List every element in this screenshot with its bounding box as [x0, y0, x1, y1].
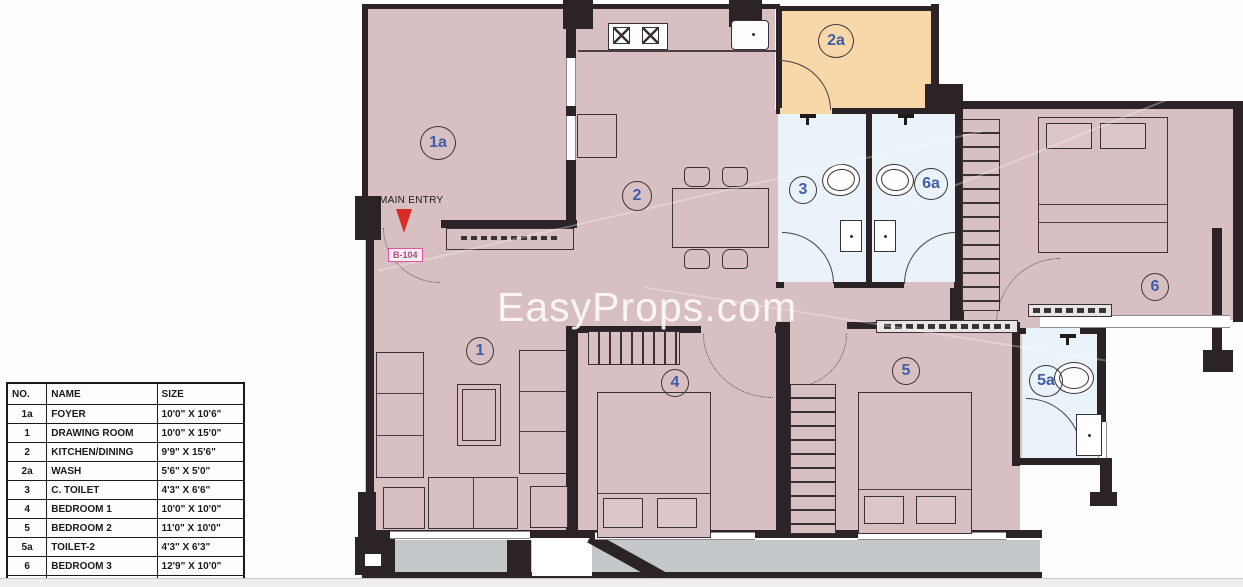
sofa-left [376, 352, 424, 478]
legend-cell-name: FOYER [47, 405, 157, 424]
room-label-5: 5 [892, 357, 920, 385]
stool [383, 487, 425, 529]
dining-chair [684, 167, 710, 187]
pillow [1100, 123, 1146, 149]
wall-pillar [1090, 492, 1117, 506]
door-gap-bedroom2 [791, 322, 847, 329]
page-bottom-strip [0, 578, 1243, 587]
wall [362, 4, 368, 198]
legend-table: NO. NAME SIZE 1a FOYER 10'0" X 10'6" 1 D… [6, 382, 245, 587]
pillow [603, 498, 643, 528]
legend-header-no: NO. [7, 383, 47, 405]
legend-header-name: NAME [47, 383, 157, 405]
sofa-bottom [428, 477, 518, 529]
legend-row: 6 BEDROOM 3 12'9" X 10'0" [7, 557, 244, 576]
sofa-right [519, 350, 567, 474]
shower-icon [1060, 334, 1076, 338]
wardrobe-bedroom3 [962, 119, 1000, 311]
legend-cell-size: 4'3" X 6'6" [157, 481, 244, 500]
legend-header-row: NO. NAME SIZE [7, 383, 244, 405]
legend-row: 4 BEDROOM 1 10'0" X 10'0" [7, 500, 244, 519]
balcony-gap [532, 540, 592, 576]
legend-row: 2 KITCHEN/DINING 9'9" X 15'6" [7, 443, 244, 462]
wall [866, 112, 872, 284]
wall [1212, 228, 1222, 354]
pillow [916, 496, 956, 524]
window [566, 58, 576, 106]
dining-chair [722, 249, 748, 269]
burner-icon [642, 27, 659, 44]
legend-row: 1a FOYER 10'0" X 10'6" [7, 405, 244, 424]
legend-cell-name: DRAWING ROOM [47, 424, 157, 443]
legend-cell-no: 1a [7, 405, 47, 424]
coffee-table [457, 384, 501, 446]
legend-cell-name: KITCHEN/DINING [47, 443, 157, 462]
room-label-6a: 6a [914, 168, 948, 200]
legend-cell-size: 12'9" X 10'0" [157, 557, 244, 576]
kitchen-counter-line [578, 50, 776, 52]
legend-row: 2a WASH 5'6" X 5'0" [7, 462, 244, 481]
legend-cell-size: 10'0" X 10'0" [157, 500, 244, 519]
wall [776, 322, 790, 538]
wall-pillar [563, 0, 593, 29]
legend-cell-size: 10'0" X 15'0" [157, 424, 244, 443]
legend-cell-no: 6 [7, 557, 47, 576]
room-label-5a: 5a [1029, 365, 1063, 397]
wardrobe-central [790, 384, 836, 534]
room-label-3: 3 [789, 176, 817, 204]
pillow [864, 496, 904, 524]
room-label-4: 4 [661, 369, 689, 397]
wardrobe-bedroom1 [588, 331, 680, 365]
room-label-6: 6 [1141, 273, 1169, 301]
ledge-bedroom3 [1028, 304, 1112, 317]
wash-basin [840, 220, 862, 252]
legend-row: 5a TOILET-2 4'3" X 6'3" [7, 538, 244, 557]
legend-cell-no: 1 [7, 424, 47, 443]
legend-cell-name: TOILET-2 [47, 538, 157, 557]
legend-row: 3 C. TOILET 4'3" X 6'6" [7, 481, 244, 500]
sink-drain-dot [752, 33, 755, 36]
stool [530, 486, 568, 528]
kitchen-sink [731, 20, 769, 50]
legend-row: 1 DRAWING ROOM 10'0" X 15'0" [7, 424, 244, 443]
wall [776, 6, 938, 11]
wall-pillar [507, 540, 531, 572]
window [390, 531, 530, 539]
legend-cell-no: 2a [7, 462, 47, 481]
legend-cell-name: BEDROOM 1 [47, 500, 157, 519]
legend-header-size: SIZE [157, 383, 244, 405]
legend-cell-no: 5 [7, 519, 47, 538]
legend-cell-size: 9'9" X 15'6" [157, 443, 244, 462]
wall [955, 101, 1242, 109]
room-label-2: 2 [622, 181, 652, 211]
floor-plan-page: EasyProps.com MAIN ENTRY B-104 1a 2 2a 3… [0, 0, 1243, 587]
legend-cell-size: 11'0" X 10'0" [157, 519, 244, 538]
wall-pillar-notch [365, 554, 381, 566]
wall [1097, 326, 1106, 422]
shower-icon [800, 114, 816, 118]
wall [441, 220, 577, 228]
unit-number-badge: B-104 [388, 248, 423, 262]
wash-basin [1076, 414, 1102, 456]
wall [1018, 458, 1106, 465]
legend-cell-name: BEDROOM 2 [47, 519, 157, 538]
main-entry-label: MAIN ENTRY [379, 195, 444, 206]
legend-cell-size: 5'6" X 5'0" [157, 462, 244, 481]
wall [358, 492, 376, 538]
burner-icon [613, 27, 630, 44]
dining-table [672, 188, 769, 248]
dining-chair [684, 249, 710, 269]
wall [1233, 101, 1243, 322]
stove [608, 23, 668, 50]
wash-basin [874, 220, 896, 252]
room-label-1: 1 [466, 337, 494, 365]
legend-cell-no: 2 [7, 443, 47, 462]
entry-arrow-icon [396, 209, 412, 233]
refrigerator [577, 114, 617, 158]
room-label-2a: 2a [818, 24, 854, 58]
legend-cell-no: 3 [7, 481, 47, 500]
shower-icon [898, 114, 914, 118]
legend-cell-name: C. TOILET [47, 481, 157, 500]
legend-cell-no: 5a [7, 538, 47, 557]
legend-cell-name: BEDROOM 3 [47, 557, 157, 576]
legend-cell-size: 10'0" X 10'6" [157, 405, 244, 424]
legend-row: 5 BEDROOM 2 11'0" X 10'0" [7, 519, 244, 538]
wall-pillar-entry [355, 196, 381, 240]
watermark: EasyProps.com [497, 284, 797, 331]
window [566, 116, 576, 160]
legend-cell-name: WASH [47, 462, 157, 481]
wall-pillar [1203, 350, 1233, 372]
pillow [657, 498, 697, 528]
legend-cell-size: 4'3" X 6'3" [157, 538, 244, 557]
legend-cell-no: 4 [7, 500, 47, 519]
room-label-1a: 1a [420, 126, 456, 160]
